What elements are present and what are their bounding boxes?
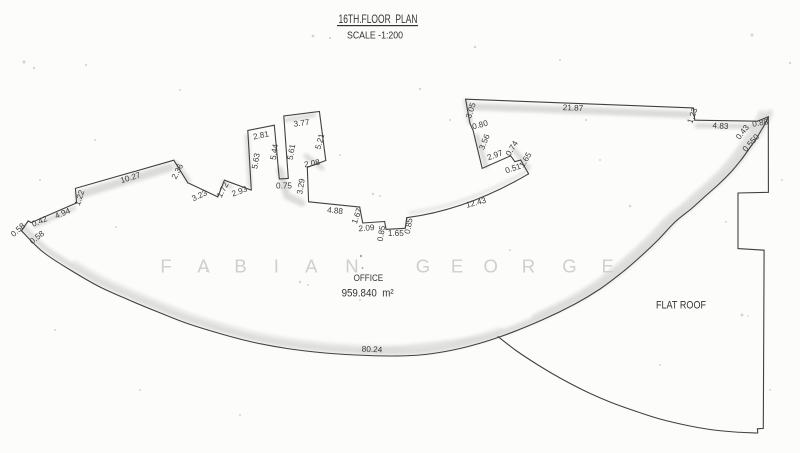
svg-text:4.83: 4.83 [712, 121, 729, 131]
svg-text:I: I [274, 256, 279, 277]
svg-text:21.87: 21.87 [563, 103, 584, 113]
svg-text:E: E [602, 256, 614, 277]
svg-text:16TH.FLOOR PLAN: 16TH.FLOOR PLAN [339, 12, 418, 26]
svg-text:A: A [305, 256, 318, 277]
svg-text:R: R [522, 256, 535, 277]
svg-text:A: A [197, 256, 210, 277]
svg-text:B: B [234, 256, 246, 277]
svg-text:2.09: 2.09 [358, 223, 375, 233]
svg-text:1.65: 1.65 [388, 229, 404, 238]
svg-text:O: O [484, 256, 498, 277]
svg-text:E: E [451, 256, 463, 277]
svg-text:0.75: 0.75 [276, 181, 292, 190]
svg-text:G: G [562, 256, 576, 277]
svg-text:80.24: 80.24 [362, 345, 383, 355]
svg-text:OFFICE: OFFICE [354, 273, 384, 284]
svg-text:G: G [416, 256, 430, 277]
svg-text:F: F [160, 256, 171, 277]
svg-text:959.840 m²: 959.840 m² [342, 288, 394, 300]
svg-text:FLAT ROOF: FLAT ROOF [656, 300, 706, 312]
svg-text:SCALE -1:200: SCALE -1:200 [347, 31, 403, 42]
svg-text:4.88: 4.88 [327, 205, 344, 216]
